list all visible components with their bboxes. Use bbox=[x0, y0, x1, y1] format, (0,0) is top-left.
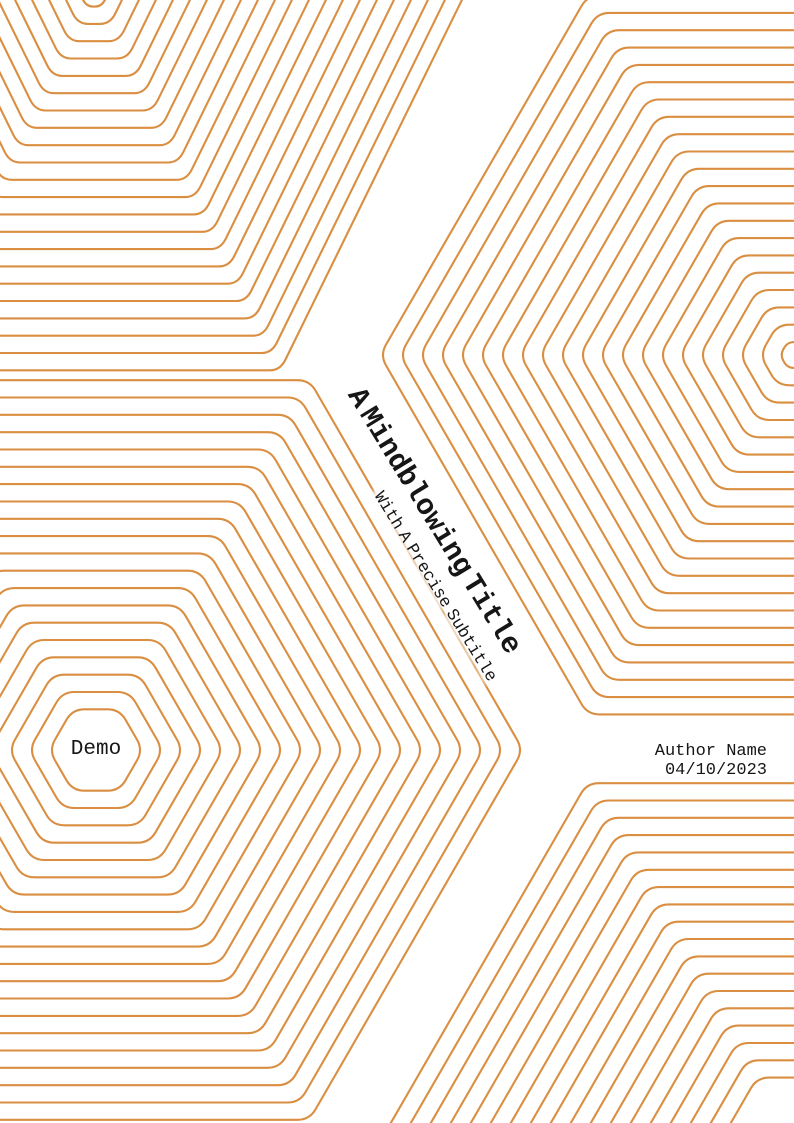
hexagon-ring bbox=[0, 0, 311, 214]
hexagon-ring bbox=[0, 0, 464, 370]
hexagon-cluster-bottom-right bbox=[317, 783, 794, 1123]
hexagon-ring bbox=[763, 325, 794, 386]
hexagon-ring bbox=[30, 0, 158, 59]
hexagon-ring bbox=[0, 0, 430, 336]
hexagon-ring bbox=[377, 835, 794, 1123]
hexagon-ring bbox=[357, 818, 794, 1123]
hexagon-ring bbox=[0, 0, 294, 197]
hexagon-ring bbox=[0, 0, 192, 93]
hexagon-ring bbox=[563, 152, 794, 559]
hexagon-ring bbox=[80, 0, 107, 7]
hexagon-pattern bbox=[0, 0, 794, 1123]
hexagon-ring bbox=[0, 0, 277, 180]
hexagon-ring bbox=[643, 221, 794, 489]
hexagon-ring bbox=[623, 203, 794, 506]
hexagon-cluster-top-left bbox=[0, 0, 464, 370]
hexagon-ring bbox=[782, 342, 794, 368]
hexagon-ring bbox=[657, 1078, 794, 1123]
document-date: 04/10/2023 bbox=[655, 761, 767, 780]
hexagon-ring bbox=[603, 186, 794, 524]
hexagon-ring bbox=[723, 290, 794, 420]
hexagon-ring bbox=[597, 1026, 794, 1123]
hexagon-ring bbox=[443, 48, 794, 663]
hexagon-ring bbox=[743, 307, 794, 402]
hexagon-ring bbox=[503, 100, 794, 611]
hexagon-ring bbox=[617, 1043, 794, 1123]
hexagon-ring bbox=[0, 0, 243, 145]
hexagon-ring bbox=[64, 0, 124, 24]
author-name: Author Name bbox=[655, 742, 767, 761]
hexagon-ring bbox=[457, 904, 794, 1123]
hexagon-ring bbox=[703, 273, 794, 438]
document-page: A Mindblowing Title With A Precise Subti… bbox=[0, 0, 794, 1123]
hexagon-ring bbox=[0, 0, 362, 266]
hexagon-ring bbox=[537, 974, 794, 1123]
hexagon-ring bbox=[477, 922, 794, 1123]
hexagon-ring bbox=[0, 0, 226, 128]
author-block: Author Name 04/10/2023 bbox=[655, 742, 767, 780]
demo-badge: Demo bbox=[36, 737, 156, 762]
